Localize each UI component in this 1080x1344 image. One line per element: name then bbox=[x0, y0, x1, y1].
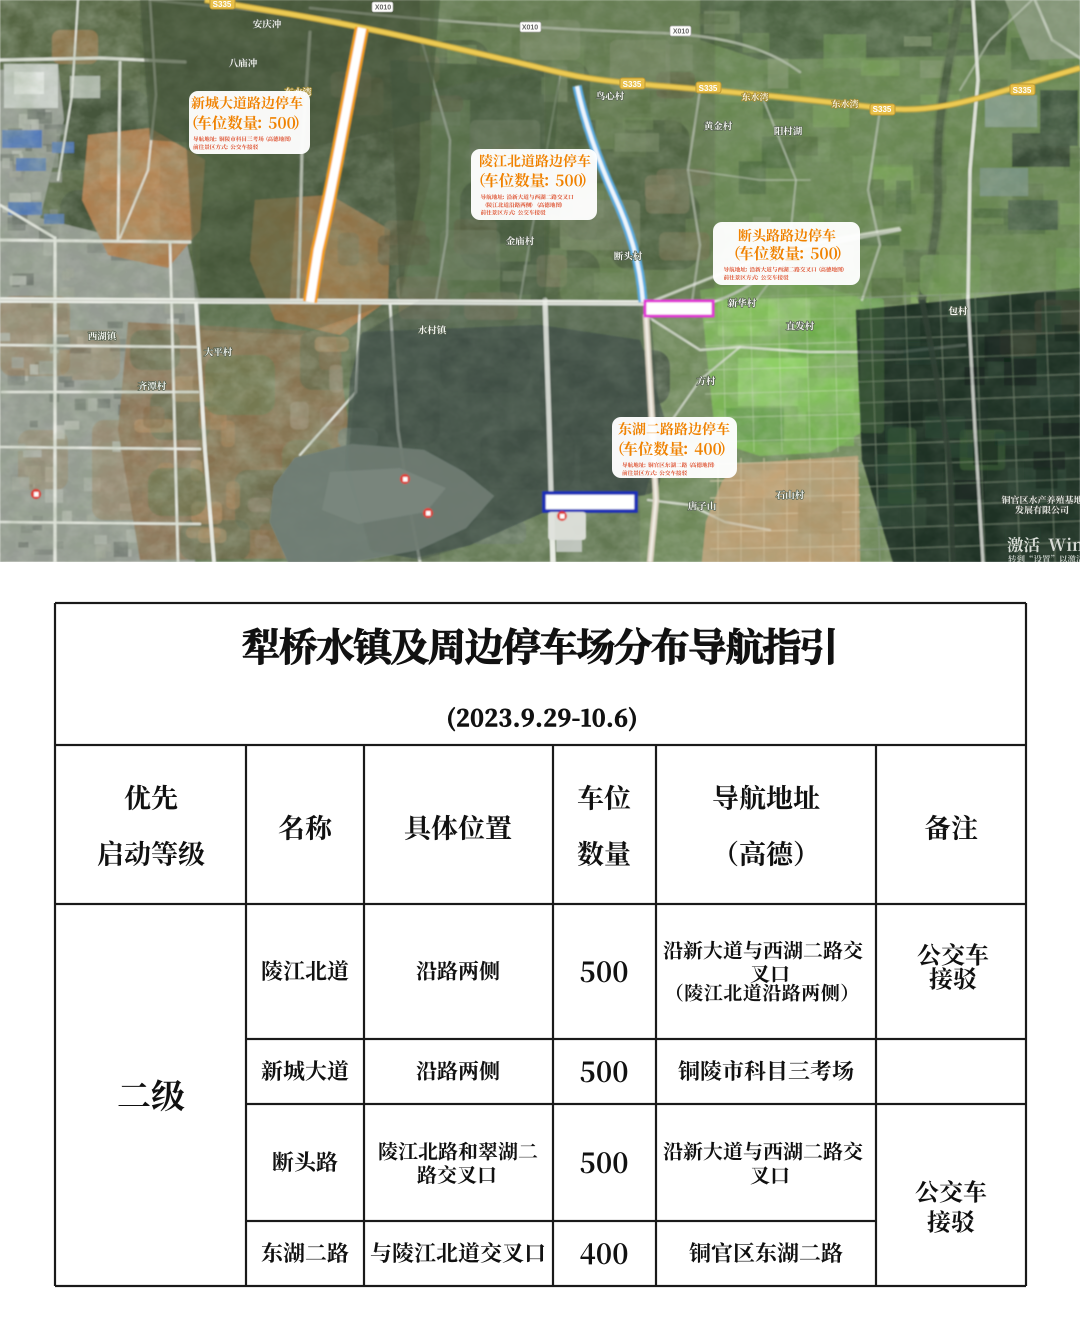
svg-text:X010: X010 bbox=[375, 5, 391, 12]
svg-text:X010: X010 bbox=[673, 29, 689, 36]
svg-text:S335: S335 bbox=[699, 84, 718, 93]
svg-text:X010: X010 bbox=[522, 25, 538, 32]
svg-text:S335: S335 bbox=[213, 0, 232, 9]
svg-text:S335: S335 bbox=[1013, 86, 1032, 95]
svg-text:S335: S335 bbox=[623, 80, 642, 89]
svg-text:S335: S335 bbox=[873, 105, 892, 114]
